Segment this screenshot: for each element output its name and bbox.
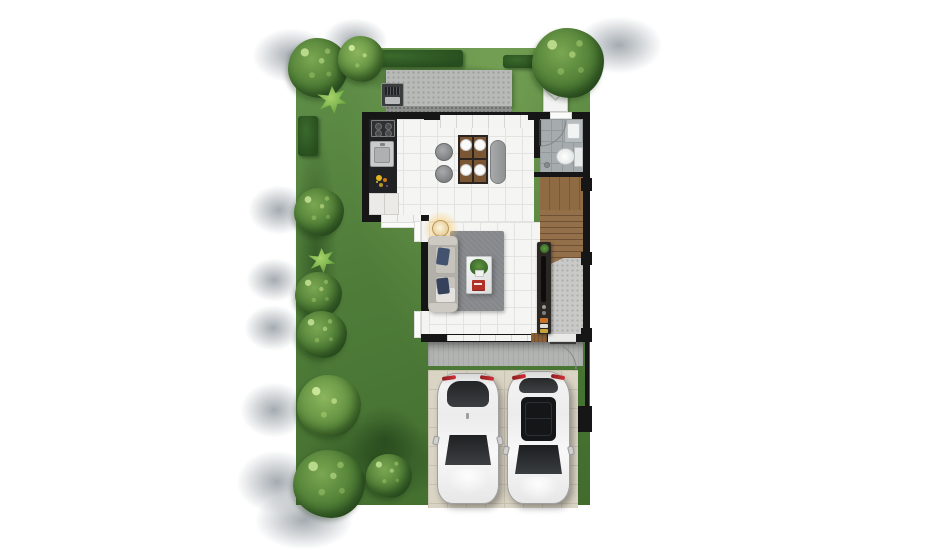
dining-chair xyxy=(435,143,453,161)
console-knob xyxy=(542,305,546,309)
rear-window xyxy=(447,381,489,407)
rear-window xyxy=(519,378,558,393)
toilet-tank xyxy=(574,147,583,167)
grill-grate xyxy=(385,87,400,95)
hedge xyxy=(298,116,318,156)
patio-slab xyxy=(386,70,512,108)
hood-highlight xyxy=(447,469,489,495)
entry-porch xyxy=(428,342,583,366)
sunroof-divider xyxy=(525,418,552,419)
navy-pillow xyxy=(436,277,450,294)
burner xyxy=(375,123,382,130)
console-item xyxy=(540,318,548,323)
burner xyxy=(375,130,382,137)
hood-highlight xyxy=(518,477,559,501)
tree xyxy=(532,28,604,98)
car-right xyxy=(507,371,570,504)
east-wall xyxy=(583,112,590,342)
boundary-wall xyxy=(585,342,589,412)
roof-antenna xyxy=(466,413,469,419)
north-window xyxy=(440,115,535,128)
plate xyxy=(474,164,486,176)
bush xyxy=(366,454,412,498)
bathroom-window xyxy=(550,112,572,119)
faucet xyxy=(380,143,385,146)
tree xyxy=(293,450,365,518)
sofa xyxy=(428,236,458,312)
kitchen-west-wall xyxy=(362,112,369,222)
bush xyxy=(294,188,344,236)
south-sliding-window xyxy=(447,335,533,341)
plate xyxy=(474,139,486,151)
kitchen-sink xyxy=(370,141,394,167)
flower-vase xyxy=(376,175,382,181)
plant-pot xyxy=(475,270,484,277)
panoramic-sunroof xyxy=(521,397,556,441)
grill-sink xyxy=(385,97,400,104)
window-sill xyxy=(414,221,421,242)
car-left xyxy=(437,373,499,504)
wall-post xyxy=(581,328,592,342)
wall-post xyxy=(581,252,592,265)
console-plant xyxy=(540,244,549,253)
console-item xyxy=(540,329,548,333)
windshield xyxy=(515,445,562,474)
base-cabinet xyxy=(369,193,399,215)
sofa-armrest xyxy=(429,303,457,312)
wall-post xyxy=(581,178,592,191)
cooktop xyxy=(371,120,395,137)
console-knob xyxy=(542,311,546,315)
television xyxy=(541,256,546,302)
table-divider xyxy=(460,158,486,160)
wash-basin xyxy=(567,123,580,139)
plate xyxy=(460,139,472,151)
bathroom-west-wall xyxy=(534,112,540,158)
wall-post xyxy=(424,112,440,120)
window-sill xyxy=(414,311,421,338)
coffee-table xyxy=(466,256,492,294)
burner xyxy=(385,130,392,137)
sofa-armrest xyxy=(429,236,457,245)
toilet-bowl xyxy=(556,148,575,165)
sink-basin xyxy=(374,147,390,163)
floor-plan-render xyxy=(0,0,940,557)
floor-drain xyxy=(544,162,550,168)
tv-console xyxy=(537,242,551,334)
plate xyxy=(460,164,472,176)
sunroof-frame xyxy=(525,402,552,436)
stair-landing xyxy=(540,177,583,210)
bush xyxy=(297,311,347,358)
bathroom-south-wall xyxy=(534,172,590,177)
navy-pillow xyxy=(436,247,450,266)
cabinet-divider xyxy=(384,194,385,214)
tree xyxy=(338,36,384,82)
dining-bench xyxy=(490,140,506,184)
bush xyxy=(297,375,361,437)
entry-door-gap xyxy=(548,334,576,342)
doormat xyxy=(531,333,547,342)
burner xyxy=(385,123,392,130)
red-books xyxy=(472,280,485,290)
bathroom-vanity xyxy=(564,119,583,143)
bbq-grill xyxy=(381,83,404,107)
floor-lamp xyxy=(432,220,449,237)
windshield xyxy=(445,435,491,465)
boundary-post xyxy=(578,406,592,432)
console-item xyxy=(540,324,548,328)
dining-chair xyxy=(435,165,453,183)
book-label xyxy=(474,283,482,285)
